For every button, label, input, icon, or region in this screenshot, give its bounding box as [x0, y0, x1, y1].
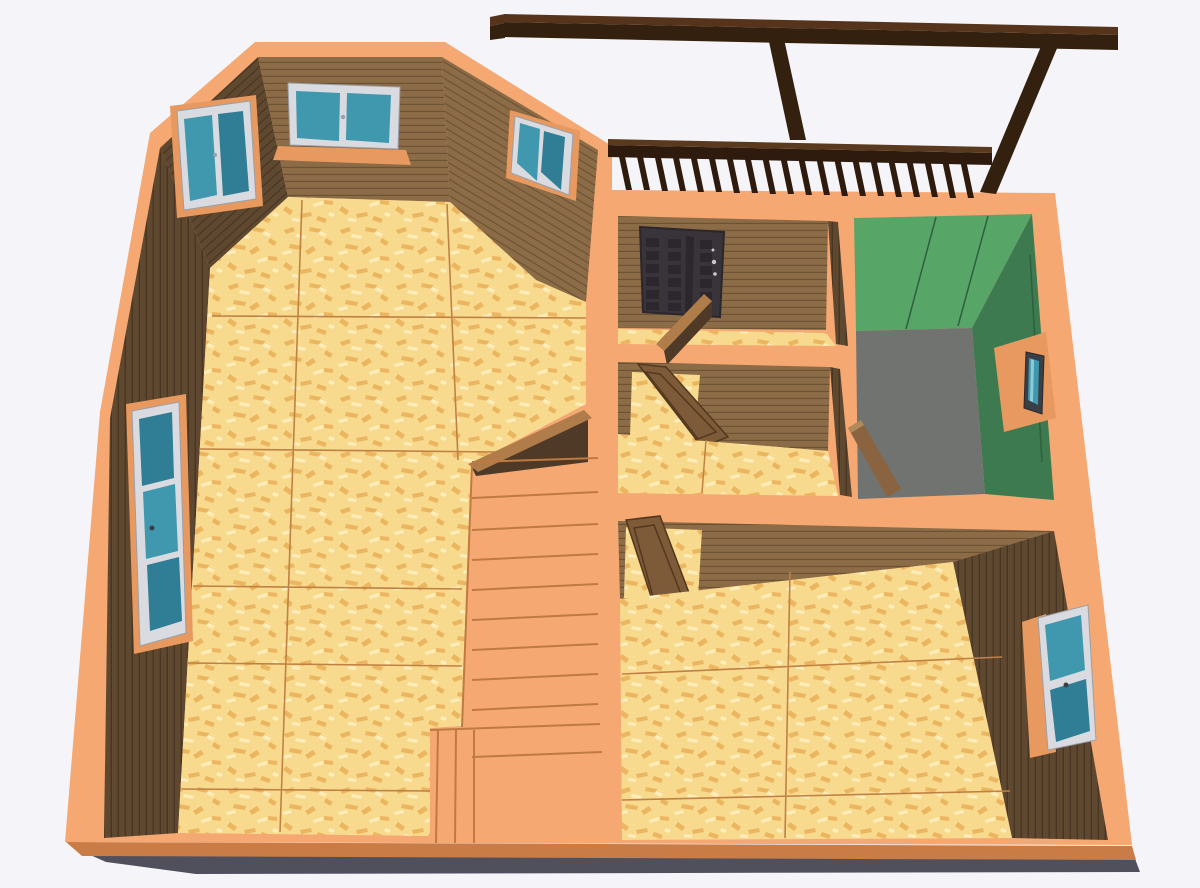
window-handle [341, 115, 345, 119]
entry-hall [618, 216, 848, 365]
door-handle [712, 260, 716, 264]
window-top-wall [273, 83, 411, 165]
door-peephole [712, 249, 715, 252]
window-glass [346, 93, 391, 143]
window-glass [139, 412, 174, 486]
inner-hall [618, 362, 852, 497]
window-handle [150, 526, 155, 531]
door-lock [713, 272, 717, 276]
window-glass [143, 484, 178, 559]
window-bedroom [1022, 605, 1096, 758]
bedroom [618, 516, 1108, 840]
window-glass [296, 91, 340, 141]
green-room [848, 214, 1056, 500]
window-green-room [994, 332, 1056, 432]
window-glass [1050, 679, 1090, 742]
window-angled-topleft [170, 95, 263, 218]
window-glass [147, 557, 182, 631]
window-left-wall [126, 394, 193, 654]
window-handle [1064, 683, 1069, 688]
floorplan-render [0, 0, 1200, 888]
window-glass [1045, 615, 1085, 681]
window-handle [213, 153, 217, 157]
